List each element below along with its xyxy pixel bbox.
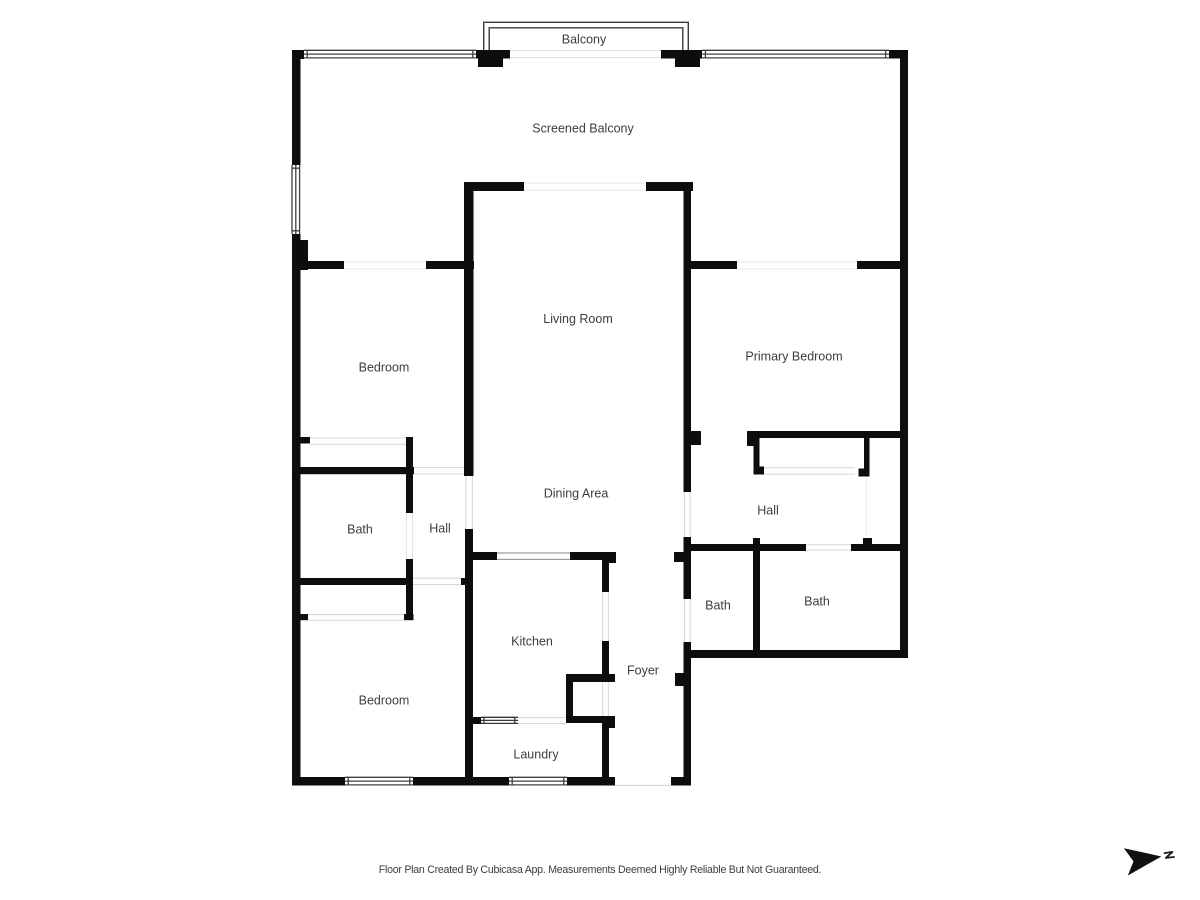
svg-text:Bath: Bath	[705, 599, 731, 613]
svg-text:Bedroom: Bedroom	[359, 361, 410, 375]
svg-text:Bedroom: Bedroom	[359, 694, 410, 708]
svg-text:Dining Area: Dining Area	[544, 487, 609, 501]
svg-text:Kitchen: Kitchen	[511, 635, 553, 649]
svg-text:Primary Bedroom: Primary Bedroom	[745, 350, 842, 364]
svg-text:Balcony: Balcony	[562, 33, 607, 47]
svg-text:Hall: Hall	[429, 522, 451, 536]
svg-text:Foyer: Foyer	[627, 664, 659, 678]
svg-text:Screened Balcony: Screened Balcony	[532, 122, 634, 136]
svg-text:Living Room: Living Room	[543, 312, 612, 326]
svg-text:Hall: Hall	[757, 504, 779, 518]
svg-text:Laundry: Laundry	[513, 748, 559, 762]
svg-text:Bath: Bath	[347, 523, 373, 537]
svg-text:Floor Plan Created By Cubicasa: Floor Plan Created By Cubicasa App. Meas…	[379, 864, 821, 876]
svg-text:Bath: Bath	[804, 595, 830, 609]
